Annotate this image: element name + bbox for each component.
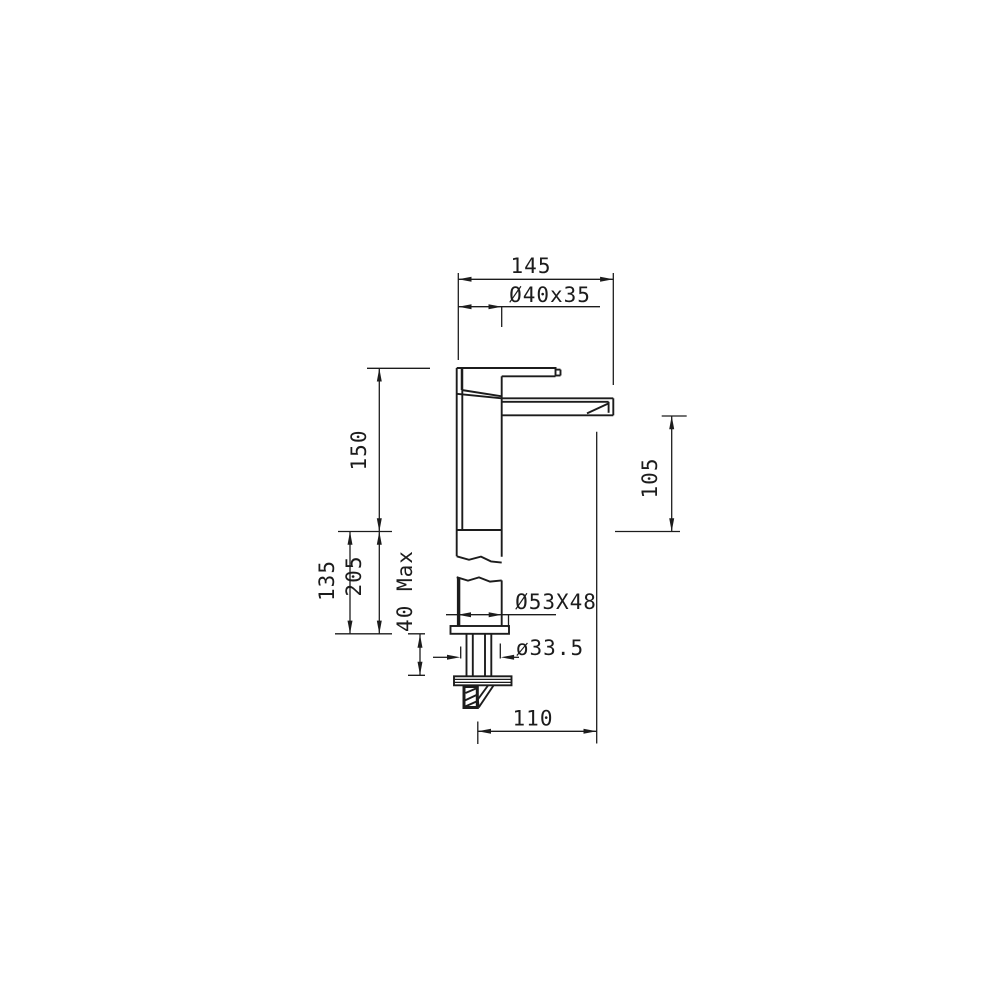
dim-label-150: 150	[347, 430, 371, 471]
dimension-base-section: Ø53X48	[446, 590, 597, 628]
faucet-elevation-drawing: 145 Ø40x35 150 105 135 205	[0, 0, 1000, 1000]
faucet-spout	[502, 398, 614, 415]
dim-label-145: 145	[511, 254, 552, 278]
dimension-deck-thickness: 40 Max	[393, 550, 425, 675]
technical-drawing-canvas: 145 Ø40x35 150 105 135 205	[0, 0, 1000, 1000]
break-line-lower	[457, 577, 502, 581]
dimension-spout-to-plane: 105	[638, 416, 687, 532]
dim-label-53x48: Ø53X48	[515, 590, 597, 614]
break-line-upper	[457, 556, 502, 562]
mounting-flange	[451, 626, 510, 634]
dim-label-135: 135	[315, 560, 339, 601]
dimension-overall-height: 205	[342, 532, 382, 634]
dimension-top-body-section: Ø40x35	[458, 283, 600, 327]
faucet-body-column	[457, 368, 502, 626]
mounting-bolt	[464, 687, 477, 708]
dim-label-40max: 40 Max	[393, 550, 417, 632]
faucet-handle	[457, 368, 561, 398]
cut-hose-stub	[478, 686, 494, 708]
dim-label-105: 105	[638, 458, 662, 499]
dim-label-205: 205	[342, 556, 366, 597]
dim-label-40x35: Ø40x35	[509, 283, 591, 307]
dimension-spout-height: 150	[347, 368, 430, 531]
dimension-overall-width: 145	[458, 254, 613, 385]
threaded-shank	[467, 634, 492, 677]
dim-label-33-5: ø33.5	[516, 636, 584, 660]
reference-lines	[335, 432, 680, 744]
dimension-spout-reach: 110	[478, 707, 597, 745]
dimension-shank-diameter: ø33.5	[433, 636, 584, 660]
mounting-washer	[454, 676, 512, 685]
dim-label-110: 110	[513, 707, 554, 731]
